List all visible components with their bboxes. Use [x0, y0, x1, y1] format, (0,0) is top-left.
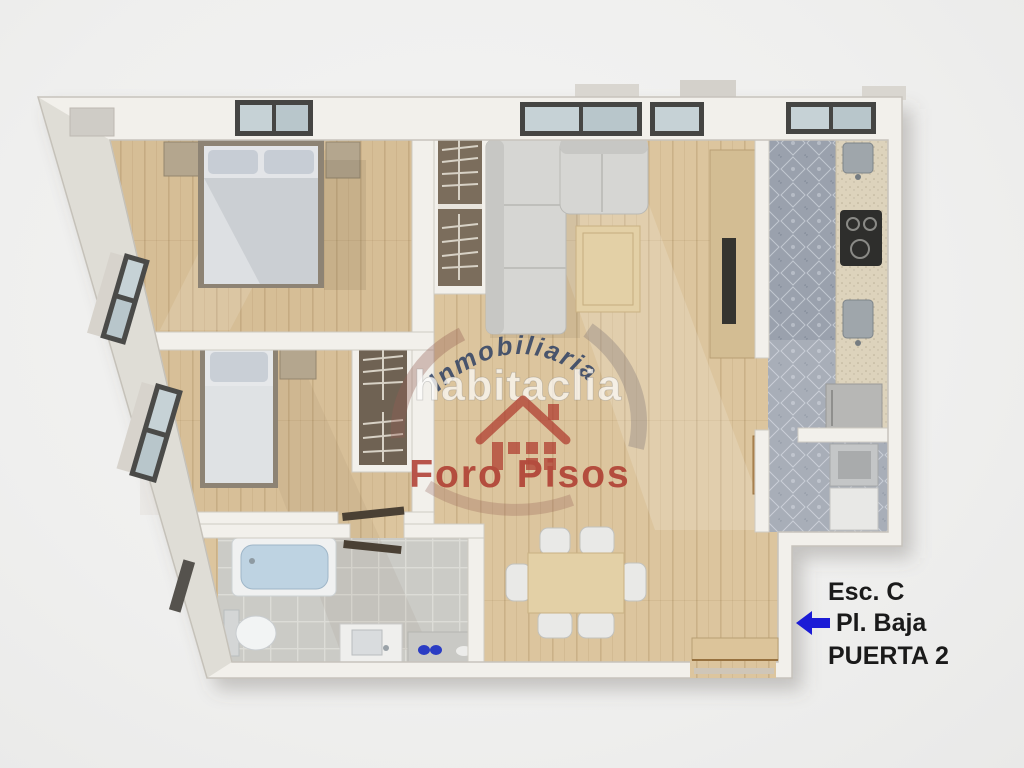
watermark-footer-text: Foro Pisos: [409, 453, 631, 496]
living-window-large: [520, 102, 642, 136]
bathtub-faucet: [249, 558, 255, 564]
chair: [506, 564, 531, 601]
coffee-table: [576, 226, 640, 312]
annotation-line3: PUERTA 2: [828, 642, 949, 670]
floorplan-3d-render: Inmobiliaria habitaclia Foro Pisos Esc. …: [0, 0, 1024, 768]
kitchen-sink-top: [843, 143, 873, 173]
window-glass: [525, 107, 579, 131]
kitchen-sink-bottom: [843, 300, 873, 338]
window-glass: [655, 107, 699, 131]
window-glass: [833, 107, 871, 129]
window-glass: [240, 105, 272, 131]
entry-threshold: [694, 668, 774, 674]
sofa-backrest: [486, 140, 504, 334]
bed-shadow: [324, 160, 366, 290]
dining-table: [528, 553, 624, 613]
wall-kitchen-upper: [755, 140, 769, 358]
ac-unit: [70, 108, 114, 136]
pillow: [210, 352, 268, 382]
wardrobe-shelf: [438, 204, 482, 209]
hall-wardrobe: [430, 124, 490, 294]
sink-faucet: [383, 645, 389, 651]
chair: [540, 528, 570, 555]
faucet: [855, 340, 861, 346]
nightstand-left: [164, 142, 200, 176]
chair: [621, 563, 646, 601]
kitchen-window: [786, 102, 876, 134]
refrigerator: [826, 384, 882, 432]
bedroom1-window: [235, 100, 313, 136]
washer-door: [838, 451, 871, 479]
annotation-line1: Esc. C: [828, 578, 904, 606]
bathtub-basin: [241, 545, 328, 589]
wall-bathroom-dining: [468, 538, 484, 662]
unit-annotation: Esc. C Pl. Baja PUERTA 2: [796, 578, 949, 670]
wall-bathroom-top: [186, 524, 350, 538]
pillow: [208, 150, 258, 174]
wall-bathroom-top: [404, 524, 484, 538]
wall-bedroom1-bedroom2: [128, 332, 434, 350]
chair: [580, 527, 614, 555]
chair: [538, 611, 572, 638]
toilet-bowl: [236, 616, 276, 650]
faucet: [855, 174, 861, 180]
blue-shoe: [430, 645, 442, 655]
entry: [690, 638, 778, 678]
floorplan-page: Inmobiliaria habitaclia Foro Pisos Esc. …: [0, 0, 1024, 768]
television: [722, 238, 736, 324]
window-glass: [791, 107, 829, 129]
counter-divider-wall: [798, 428, 888, 442]
living-window-small: [650, 102, 704, 136]
wall-kitchen-lower: [755, 430, 769, 532]
pillow: [264, 150, 314, 174]
entry-door-leaf: [692, 638, 778, 660]
window-glass: [276, 105, 308, 131]
appliance: [830, 488, 878, 530]
house-chimney: [548, 404, 559, 420]
duvet: [205, 386, 273, 483]
sink-basin: [352, 630, 382, 655]
annotation-line2: Pl. Baja: [836, 609, 927, 637]
blue-shoe: [418, 645, 430, 655]
chair: [578, 611, 614, 638]
window-glass: [583, 107, 637, 131]
